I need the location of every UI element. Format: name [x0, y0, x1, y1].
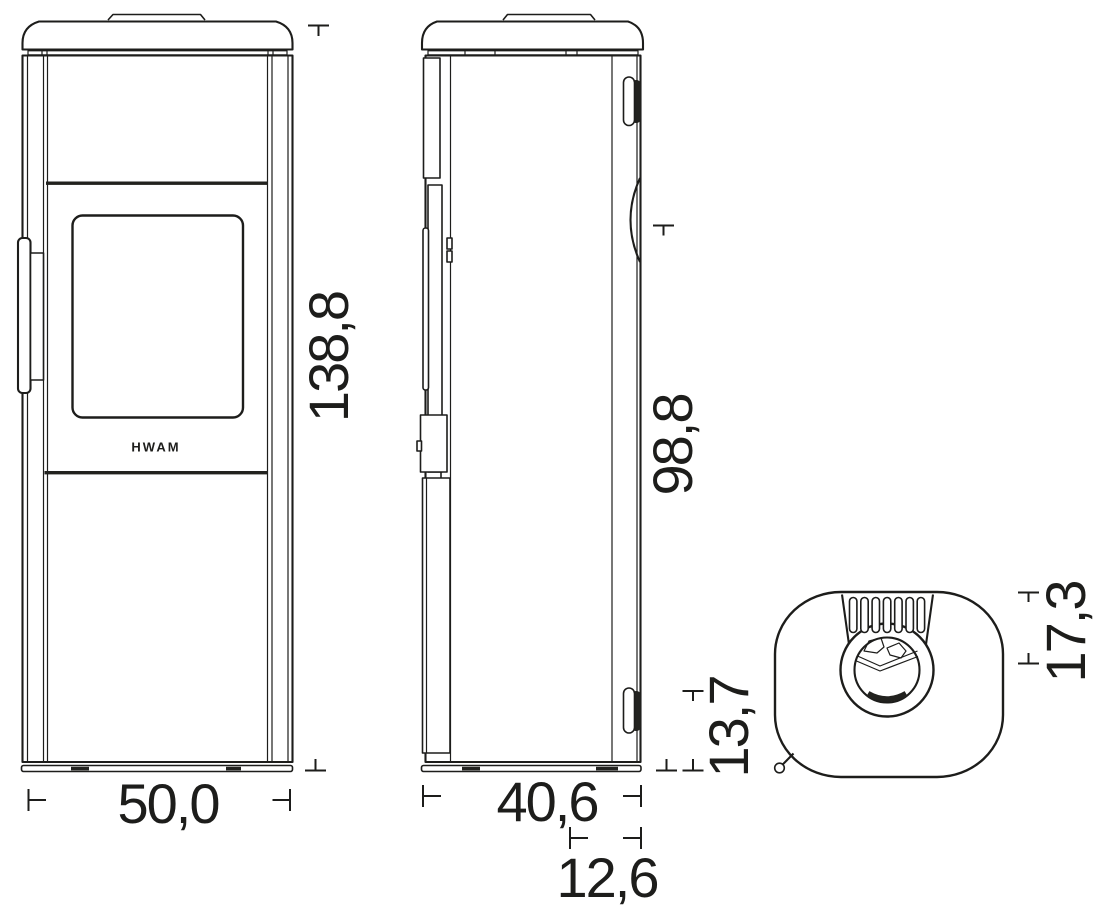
tick-side-depth-left — [423, 785, 441, 807]
vent-slot — [883, 598, 890, 633]
body-outline-front — [23, 56, 293, 763]
top-view — [775, 592, 1003, 777]
tick-front-height-top — [308, 26, 329, 37]
handle-mount-block — [421, 415, 448, 472]
vent-slot — [906, 598, 913, 633]
panel-seams-side — [451, 56, 638, 763]
vent-slot — [895, 598, 902, 633]
vent-slot — [850, 598, 857, 633]
dim-side-depth: 40,6 — [497, 774, 598, 830]
hinge-upper — [447, 238, 452, 249]
door-handle-side — [423, 228, 429, 390]
top-vent-grille — [850, 598, 925, 633]
brand-logo: HWAM — [131, 441, 180, 454]
hinge-lower — [447, 251, 452, 262]
dim-side-rear-depth: 12,6 — [557, 850, 658, 906]
vent-slot — [917, 598, 924, 633]
dim-front-width: 50,0 — [118, 776, 219, 832]
top-plate-underside-side — [428, 51, 638, 55]
tick-front-height-bottom — [305, 759, 326, 771]
tick-outlet-height-top — [653, 226, 674, 236]
door-handle-front — [18, 238, 31, 393]
foot-rear — [596, 767, 618, 771]
dim-front-height: 138,8 — [301, 292, 357, 422]
door-top-gap — [46, 182, 268, 185]
rear-vent-slot-top — [624, 77, 635, 126]
base-plate-front — [22, 766, 293, 772]
handle-mount-notch — [417, 441, 422, 451]
upper-front-slab — [424, 58, 441, 178]
tick-front-width-left — [29, 789, 47, 811]
rear-flue-outlet-arc — [631, 178, 641, 262]
vent-slot — [861, 598, 868, 633]
handle-stem-top-view — [783, 754, 794, 765]
tick-front-width-right — [273, 789, 291, 811]
handle-knob-top-view — [775, 763, 785, 773]
top-plate-side — [422, 22, 643, 50]
technical-drawing-canvas: HWAM 50,0 138,8 40,6 12,6 98,8 13,7 17,3 — [0, 0, 1101, 913]
dim-rear-lower-height: 13,7 — [701, 677, 757, 778]
front-view — [18, 15, 293, 772]
dimension-ticks — [29, 26, 1040, 850]
foot-right — [226, 767, 241, 771]
foot-front — [462, 767, 480, 771]
foot-left — [71, 767, 89, 771]
body-outline-side — [426, 56, 641, 763]
door-bottom-gap — [45, 471, 269, 474]
top-plate-front — [23, 22, 293, 50]
tick-side-depth-right — [623, 785, 641, 807]
side-panel-seams-front — [28, 56, 289, 763]
dim-rear-outlet-height: 98,8 — [645, 395, 701, 496]
dim-top-outlet-offset: 17,3 — [1038, 582, 1094, 683]
vent-slot — [872, 598, 879, 633]
tick-outlet-height-bottom — [656, 759, 677, 771]
flue-stub-front — [108, 15, 205, 21]
door-window — [73, 216, 244, 418]
rear-vent-slot-bottom — [624, 688, 635, 733]
door-handle-bracket — [31, 253, 44, 380]
top-plate-underside — [28, 51, 287, 55]
flue-stub-side — [503, 15, 595, 21]
side-view — [417, 15, 643, 772]
